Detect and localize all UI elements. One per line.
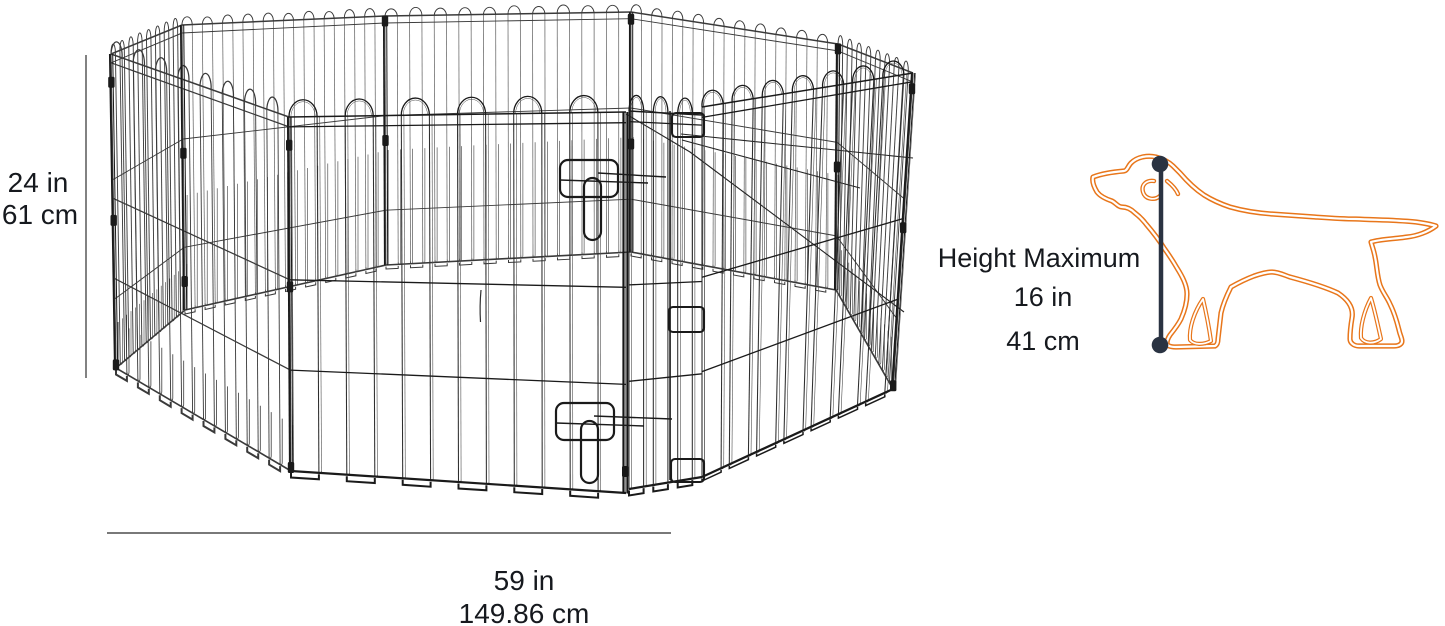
svg-text:Height Maximum: Height Maximum — [938, 243, 1141, 273]
svg-text:24 in: 24 in — [8, 167, 69, 198]
svg-text:61 cm: 61 cm — [2, 199, 78, 230]
svg-text:41 cm: 41 cm — [1006, 326, 1080, 356]
svg-text:149.86 cm: 149.86 cm — [459, 598, 590, 626]
svg-text:16 in: 16 in — [1014, 282, 1073, 312]
svg-text:59 in: 59 in — [494, 565, 555, 596]
